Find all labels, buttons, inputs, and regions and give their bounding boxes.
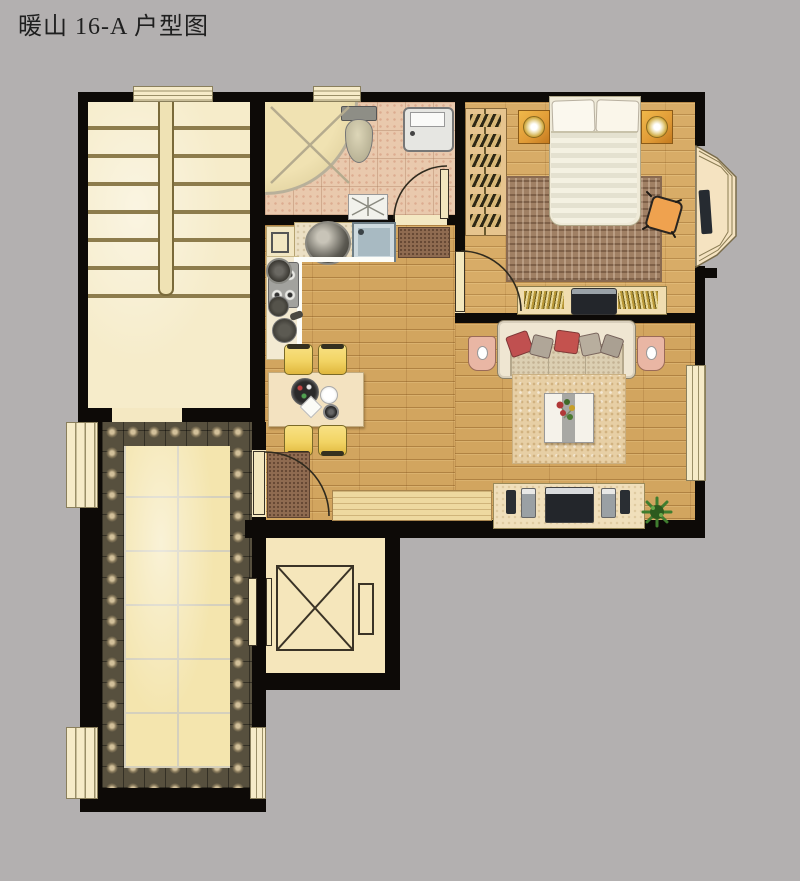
page-title: 暖山 16-A 户型图: [18, 6, 209, 41]
wall-terrace-right-upper: [252, 422, 266, 450]
armchair-right: [637, 336, 665, 371]
wall-stair-bottom-left: [78, 408, 112, 422]
window-terrace-left-lower: [66, 727, 98, 799]
hanging-clothes: [470, 194, 501, 207]
dining-chair: [318, 344, 347, 375]
bay-window: [696, 146, 736, 267]
speaker-dark: [506, 490, 516, 514]
terrace-tiles: [124, 446, 230, 768]
wall-stair-bottom-right: [182, 408, 265, 422]
faucet: [358, 229, 364, 235]
bed: [549, 96, 641, 226]
shoe-bench: [332, 490, 492, 521]
wall-right-mid: [695, 266, 705, 365]
bay-monitor: [698, 190, 712, 235]
entry-door: [253, 451, 265, 515]
elevator-door-outer: [248, 578, 257, 646]
speaker-gray: [601, 488, 616, 518]
window-living-right: [686, 365, 706, 481]
bed-pillow: [551, 99, 595, 133]
armchair-lamp: [646, 346, 657, 360]
nightstand-left: [518, 110, 550, 144]
side-plate: [320, 386, 338, 404]
dining-chair: [318, 425, 347, 456]
wall-terrace-bottom: [80, 788, 266, 812]
kitchen-cabinet-inner: [271, 232, 289, 253]
armchair-lamp: [477, 346, 488, 360]
wall-elevator-right: [385, 520, 400, 690]
hanging-clothes: [470, 154, 501, 167]
kitchen-cabinet: [266, 226, 296, 258]
wall-elevator-bottom: [252, 673, 400, 690]
speaker-gray: [521, 488, 536, 518]
bedroom-door: [455, 251, 465, 312]
wall-left-upper: [78, 92, 88, 422]
wall-bath-bottom-stub: [447, 215, 465, 225]
hanging-clothes: [470, 174, 501, 187]
sofa-pillow-red: [554, 329, 581, 354]
window-top-staircase: [133, 86, 213, 102]
pot-large: [272, 318, 297, 343]
hanging-clothes: [470, 214, 501, 227]
bed-pillow: [595, 99, 639, 133]
coffee-table-runner: [562, 394, 575, 442]
hanging-clothes: [470, 134, 501, 147]
bedroom-console: [517, 286, 667, 315]
washing-machine-knob: [410, 131, 415, 136]
hanging-clothes: [470, 114, 501, 127]
nightstand-right: [641, 110, 673, 144]
lamp: [523, 116, 545, 138]
elevator-door-inner: [266, 578, 272, 646]
wall-bath-bedroom: [455, 92, 465, 252]
floor-drain: [348, 194, 388, 220]
bathroom-doormat: [398, 227, 450, 258]
bathroom-door: [440, 169, 449, 219]
floor-plan: 暖山 16-A 户型图: [0, 0, 800, 881]
console-fringe: [524, 291, 564, 309]
speaker-dark: [620, 490, 630, 514]
bay-window-frame: [699, 151, 732, 261]
tv-console: [493, 483, 645, 529]
lamp: [646, 116, 668, 138]
armchair-left: [468, 336, 496, 371]
wok-pan: [266, 258, 292, 284]
tv-screen: [545, 487, 594, 523]
wall-right-upper: [695, 92, 705, 146]
stair-doorway: [112, 408, 182, 422]
window-terrace-left-upper: [66, 422, 98, 508]
coffee-table: [544, 393, 594, 443]
pot-small: [268, 296, 289, 317]
washing-machine: [403, 107, 454, 152]
washing-machine-lid: [410, 112, 445, 127]
counter-rim-h: [294, 257, 394, 262]
stair-rail: [158, 100, 174, 296]
entry-doormat: [267, 452, 310, 518]
wardrobe: [465, 108, 507, 236]
bay-window-frame: [699, 156, 728, 256]
dining-chair: [284, 344, 313, 375]
elevator-shaft: [266, 538, 385, 673]
window-terrace-right-lower: [250, 727, 266, 799]
wall-stair-right: [250, 92, 265, 422]
window-top-bathroom: [313, 86, 361, 102]
kitchen-sink: [352, 222, 396, 262]
bowl: [323, 404, 339, 420]
bed-blanket: [551, 131, 637, 223]
wall-right-jog: [705, 268, 717, 278]
console-tv: [571, 288, 617, 315]
staircase-room: [88, 102, 250, 408]
sofa-pillow-gray: [578, 332, 603, 357]
console-fringe: [618, 291, 658, 309]
